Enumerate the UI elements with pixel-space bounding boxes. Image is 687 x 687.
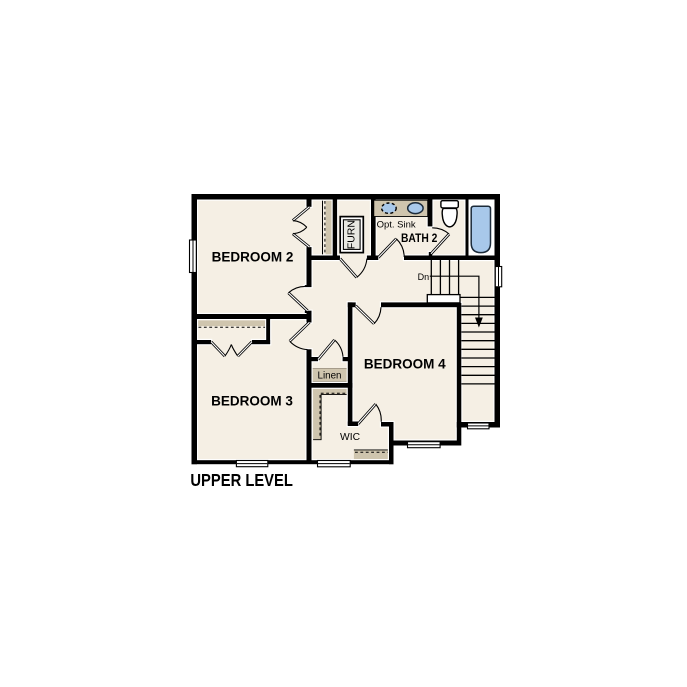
svg-text:FURN: FURN <box>346 220 358 249</box>
svg-text:Opt. Sink: Opt. Sink <box>377 220 416 231</box>
svg-text:UPPER LEVEL: UPPER LEVEL <box>190 470 293 490</box>
svg-text:Dn: Dn <box>418 272 430 282</box>
svg-text:BEDROOM 2: BEDROOM 2 <box>212 250 294 265</box>
svg-text:BATH 2: BATH 2 <box>401 231 438 245</box>
svg-text:WIC: WIC <box>340 432 361 443</box>
svg-text:Linen: Linen <box>318 370 342 381</box>
svg-text:BEDROOM 4: BEDROOM 4 <box>364 357 446 372</box>
svg-text:BEDROOM 3: BEDROOM 3 <box>211 394 293 409</box>
